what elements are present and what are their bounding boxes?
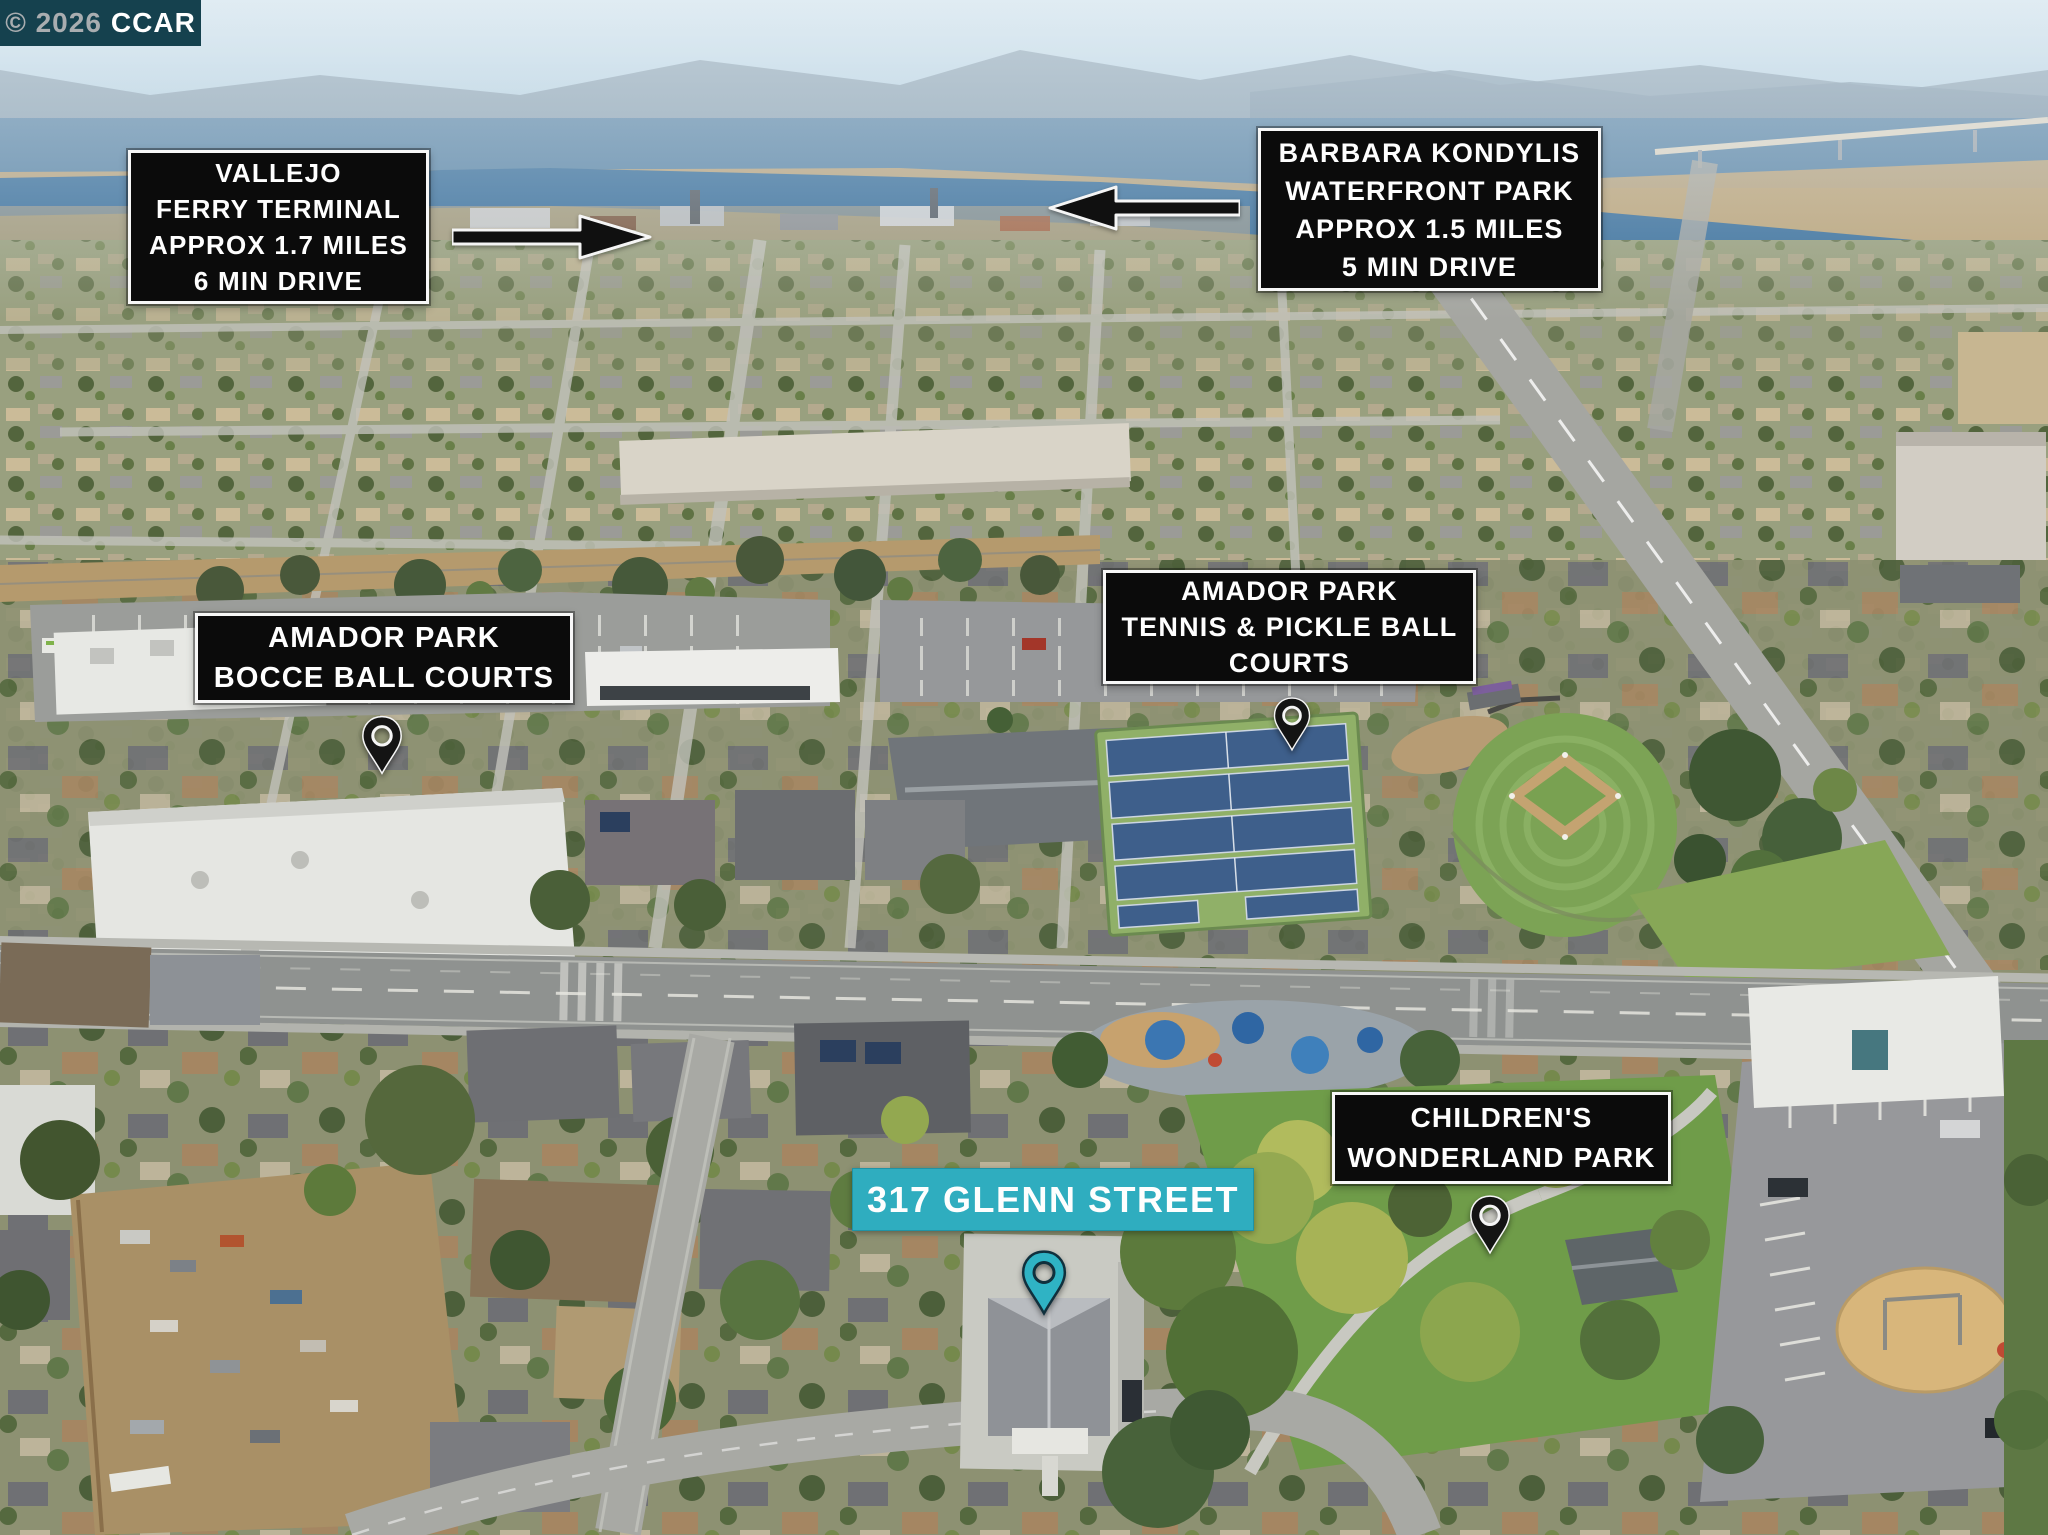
label-line: APPROX 1.5 MILES — [1295, 210, 1563, 248]
label-line: AMADOR PARK — [1181, 573, 1398, 609]
label-line: WONDERLAND PARK — [1347, 1138, 1655, 1178]
tennis-pickleball-courts — [1095, 713, 1371, 936]
label-line: BOCCE BALL COURTS — [214, 658, 554, 698]
label-childrens-wonderland-park: CHILDREN'S WONDERLAND PARK — [1332, 1092, 1671, 1184]
label-line: 317 GLENN STREET — [867, 1179, 1239, 1221]
label-line: 5 MIN DRIVE — [1342, 248, 1517, 286]
watermark-brand: CCAR — [111, 7, 196, 39]
map-pin-icon-tennis — [1271, 692, 1313, 756]
label-line: AMADOR PARK — [268, 618, 500, 658]
label-line: VALLEJO — [215, 155, 341, 191]
label-line: CHILDREN'S — [1411, 1098, 1593, 1138]
aerial-map-screenshot: © 2026 CCAR VALLEJO FERRY TERMINAL APPRO… — [0, 0, 2048, 1535]
label-vallejo-ferry-terminal: VALLEJO FERRY TERMINAL APPROX 1.7 MILES … — [128, 150, 429, 304]
sand-play-circle — [1837, 1268, 2013, 1392]
arrow-right-icon — [452, 212, 652, 262]
label-line: BARBARA KONDYLIS — [1279, 134, 1581, 172]
watermark-badge: © 2026 CCAR — [0, 0, 201, 46]
label-amador-park-tennis: AMADOR PARK TENNIS & PICKLE BALL COURTS — [1103, 570, 1476, 684]
label-line: FERRY TERMINAL — [156, 191, 401, 227]
arrow-left-icon — [1048, 184, 1240, 232]
label-line: 6 MIN DRIVE — [194, 263, 363, 299]
map-pin-icon-childrens-wonderland — [1467, 1192, 1513, 1257]
label-barbara-kondylis-waterfront-park: BARBARA KONDYLIS WATERFRONT PARK APPROX … — [1258, 128, 1601, 291]
watermark-year: © 2026 — [5, 7, 102, 39]
label-subject-property-address: 317 GLENN STREET — [852, 1168, 1254, 1231]
label-line: TENNIS & PICKLE BALL — [1121, 609, 1457, 645]
label-line: APPROX 1.7 MILES — [149, 227, 408, 263]
map-pin-icon-subject-property — [1019, 1248, 1069, 1317]
label-amador-park-bocce: AMADOR PARK BOCCE BALL COURTS — [195, 613, 573, 703]
label-line: COURTS — [1229, 645, 1350, 681]
map-pin-icon-bocce — [359, 712, 405, 778]
label-line: WATERFRONT PARK — [1285, 172, 1573, 210]
